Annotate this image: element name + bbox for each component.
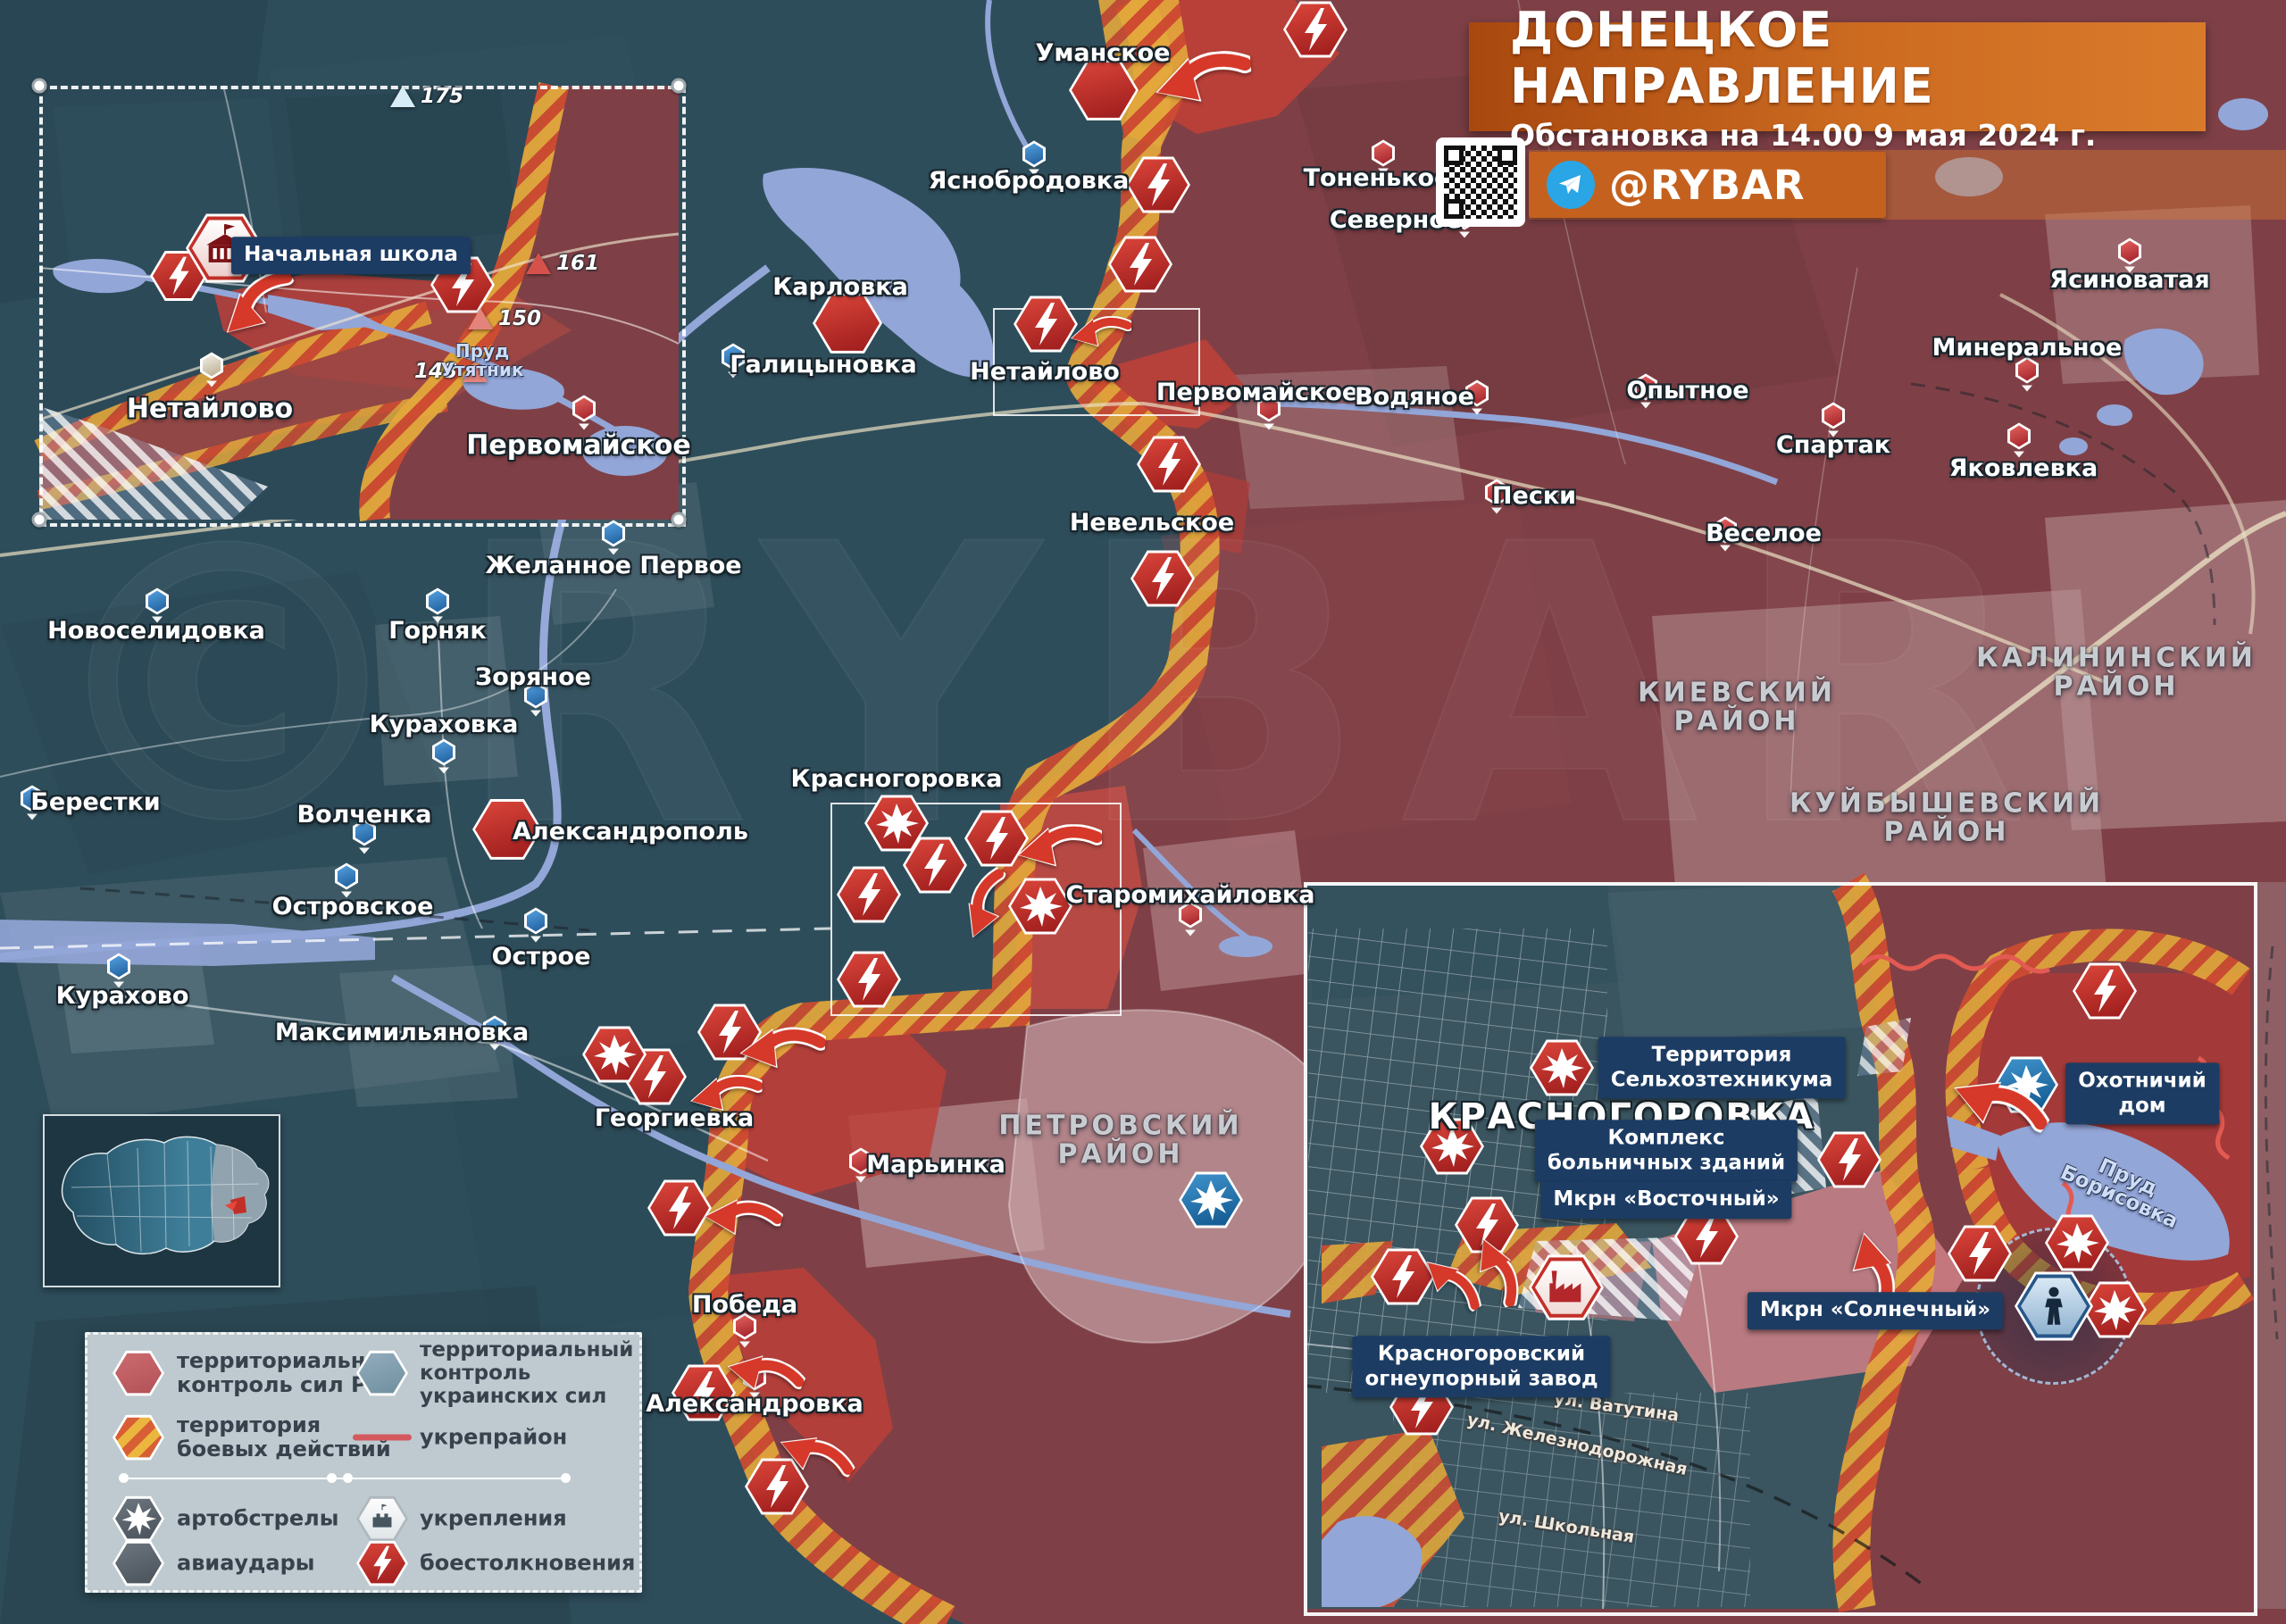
place-label: Тоненькое [1304, 166, 1451, 191]
qr-pattern [1444, 146, 1517, 219]
lightning-icon [1969, 1232, 1991, 1275]
place-label: Курахово [56, 984, 189, 1009]
height-triangle-icon [526, 253, 551, 274]
town-marker [200, 353, 223, 387]
explosion-icon [2094, 1290, 2137, 1330]
place-label: Яковлевка [1949, 456, 2098, 481]
combat-icon [2073, 963, 2137, 1020]
height-mark: 175 [390, 85, 463, 108]
height-value: 150 [498, 307, 541, 330]
place-label: Пески [1492, 484, 1576, 509]
town-marker [2015, 357, 2039, 392]
legend-clashes-label: боестолкновения [420, 1551, 635, 1575]
inset-corner-handle [672, 79, 687, 94]
place-label: Опытное [1626, 379, 1748, 404]
place-label: КАЛИНИНСКИЙ РАЙОН [1976, 645, 2257, 701]
info-box: Территория Сельхозтехникума [1598, 1037, 1846, 1098]
inset-corner-handle [32, 79, 47, 94]
place-label: Нетайлово [970, 360, 1120, 385]
explosion-icon [1541, 1048, 1584, 1088]
factory-icon [1549, 1270, 1581, 1302]
info-box: Мкрн «Солнечный» [1748, 1292, 2003, 1329]
legend-panel: территориальный контроль сил РФ территор… [85, 1332, 642, 1593]
marker-hex-icon [524, 908, 547, 935]
town-marker [572, 396, 596, 430]
combat-icon [813, 293, 882, 354]
legend-divider-dot [343, 1473, 353, 1483]
qr-finder-icon [1444, 199, 1464, 219]
lightning-icon [1130, 243, 1152, 286]
map-canvas: ©RYBAR [0, 0, 2286, 1624]
legend-divider-dot [119, 1473, 129, 1483]
combat-icon [864, 795, 929, 852]
marker-hex-icon [602, 521, 625, 547]
marker-hex-icon [432, 739, 455, 766]
marker-hex-icon [200, 353, 223, 379]
height-mark: 161 [526, 252, 599, 275]
marker-pointer [1185, 930, 1196, 937]
legend-fortified-line-icon [353, 1435, 412, 1441]
lightning-icon [1035, 303, 1057, 346]
combat-icon [1137, 437, 1201, 493]
place-label: Горняк [388, 619, 486, 644]
telegram-banner[interactable]: @RYBAR [1529, 152, 1886, 218]
info-box: Красногоровский огнеупорный завод [1352, 1336, 1610, 1397]
attack-arrow-icon [687, 1075, 763, 1123]
legend-rf-icon [113, 1351, 164, 1396]
place-label: Галицыновка [730, 353, 916, 378]
place-label: Пруд Утятник [441, 342, 524, 379]
legend-ua-label: территориальный контроль украинских сил [420, 1338, 639, 1408]
combat-icon [1530, 1040, 1594, 1096]
combat-icon [1126, 157, 1190, 213]
combat-icon [1108, 237, 1172, 293]
place-label: Нетайлово [127, 395, 293, 423]
brand-handle: @RYBAR [1609, 162, 1806, 209]
place-label: ПЕТРОВСКИЙ РАЙОН [998, 1112, 1242, 1169]
map-title: ДОНЕЦКОЕ НАПРАВЛЕНИЕ [1510, 2, 2206, 114]
place-label: КУЙБЫШЕВСКИЙ РАЙОН [1790, 790, 2104, 846]
place-label: Волченка [297, 803, 432, 828]
lightning-icon [1696, 1215, 1718, 1258]
explosion-icon [594, 1035, 637, 1075]
place-label: Островское [272, 895, 434, 920]
legend-fortifications-label: укрепления [420, 1506, 567, 1530]
legend-ua-icon [356, 1351, 408, 1396]
title-banner: ДОНЕЦКОЕ НАПРАВЛЕНИЕ Обстановка на 14.00… [1469, 22, 2206, 131]
marker-hex-icon [107, 954, 130, 980]
height-triangle-icon [390, 86, 415, 107]
ukraine-minimap [43, 1114, 280, 1287]
place-label: Спартак [1776, 433, 1890, 458]
inset-corner-handle [32, 512, 47, 528]
legend-artillery-label: артобстрелы [177, 1506, 338, 1530]
marker-hex-icon [146, 588, 169, 615]
place-label: Максимильяновка [275, 1020, 529, 1045]
info-box: Начальная школа [231, 237, 471, 274]
lightning-icon [858, 873, 880, 916]
legend-airstrikes-icon [113, 1541, 164, 1587]
combat-icon [837, 952, 901, 1008]
legend-artillery-icon [113, 1496, 164, 1542]
marker-pointer [530, 937, 541, 943]
lightning-icon [986, 817, 1008, 860]
marker-pointer [2022, 386, 2032, 392]
marker-hex-icon [2118, 238, 2141, 265]
lightning-icon [1839, 1138, 1861, 1181]
legend-divider-dot [561, 1473, 571, 1483]
soldier-icon [2045, 1287, 2063, 1325]
marker-hex-icon [2007, 423, 2031, 450]
legend-divider-dot [327, 1473, 337, 1483]
inset-corner-handle [672, 512, 687, 528]
place-label: Невельское [1070, 511, 1234, 536]
marker-hex-icon [335, 863, 358, 890]
combat-icon [1283, 2, 1347, 58]
explosion-icon [2057, 1223, 2099, 1263]
marker-pointer [1264, 424, 1274, 430]
combat-icon [2015, 1272, 2093, 1341]
place-label: Победа [692, 1293, 797, 1318]
place-label: Водяное [1355, 385, 1474, 410]
combat-icon [1529, 1254, 1604, 1320]
height-triangle-icon [468, 308, 493, 329]
legend-clashes-icon [356, 1541, 408, 1587]
lightning-icon [1152, 557, 1174, 600]
explosion-icon [876, 804, 919, 844]
place-label: Веселое [1706, 521, 1822, 546]
place-label: Ясиноватая [2049, 268, 2209, 293]
place-label: Яснобродовка [929, 169, 1130, 194]
lightning-icon [1305, 8, 1327, 51]
place-label: Острое [492, 945, 591, 970]
town-marker [524, 908, 547, 943]
qr-finder-icon [1444, 146, 1464, 165]
info-box: Охотничий дом [2065, 1062, 2219, 1124]
info-box: Комплекс больничных зданий [1535, 1120, 1798, 1181]
marker-hex-icon [1822, 403, 1845, 429]
marker-pointer [359, 848, 370, 854]
combat-icon [2045, 1215, 2109, 1271]
place-label: Старомихайловка [1065, 883, 1314, 908]
inset-krasnogorovka-bg [1304, 882, 2286, 1609]
combat-icon [1069, 60, 1139, 121]
telegram-icon [1547, 161, 1595, 209]
place-label: КИЕВСКИЙ РАЙОН [1638, 679, 1836, 736]
explosion-icon [1190, 1180, 1233, 1220]
marker-pointer [438, 768, 449, 774]
attack-arrow-icon [1067, 316, 1131, 357]
marker-hex-icon [572, 396, 596, 422]
height-mark: 150 [468, 307, 541, 330]
place-label: Первомайское [466, 431, 690, 460]
lightning-icon [1158, 443, 1181, 486]
marker-pointer [206, 381, 217, 387]
town-marker [2007, 423, 2031, 458]
marker-pointer [855, 1177, 866, 1183]
lightning-icon [669, 1187, 691, 1229]
combat-icon [1130, 551, 1195, 607]
qr-code[interactable] [1436, 137, 1525, 227]
legend-combat-zone-icon [113, 1415, 164, 1461]
combat-icon [1817, 1132, 1881, 1188]
combat-icon [1179, 1172, 1243, 1228]
qr-finder-icon [1498, 146, 1517, 165]
place-label: Марьинка [866, 1153, 1005, 1178]
combat-icon [1948, 1226, 2012, 1282]
legend-fortified-label: укрепрайон [420, 1425, 567, 1449]
attack-arrow-icon [1147, 49, 1256, 123]
marker-hex-icon [426, 588, 449, 615]
lightning-icon [1147, 163, 1170, 206]
lightning-icon [2094, 970, 2116, 1012]
legend-fortifications-icon [356, 1496, 408, 1542]
marker-hex-icon [1372, 140, 1395, 167]
marker-hex-icon [1022, 141, 1046, 168]
combat-icon [837, 867, 901, 923]
place-label: Берестки [30, 790, 160, 815]
ukraine-minimap-graphic [45, 1116, 275, 1282]
place-label: Красногоровка [791, 767, 1003, 792]
place-label: Новоселидовка [47, 619, 265, 644]
place-label: Зоряное [475, 665, 591, 690]
attack-arrow-icon [1013, 824, 1102, 881]
lightning-icon [644, 1055, 666, 1098]
place-label: Александрополь [513, 820, 748, 845]
height-value: 175 [421, 85, 463, 108]
place-label: Минеральное [1932, 336, 2123, 361]
town-marker [432, 739, 455, 774]
marker-pointer [530, 711, 541, 717]
place-label: Карловка [772, 275, 908, 300]
map-subtitle: Обстановка на 14.00 9 мая 2024 г. [1510, 118, 2206, 153]
place-label: Желанное Первое [485, 554, 741, 579]
legend-airstrikes-label: авиаудары [177, 1551, 315, 1575]
info-box: Мкрн «Восточный» [1540, 1181, 1791, 1219]
lightning-icon [858, 958, 880, 1001]
town-marker [602, 521, 625, 555]
height-value: 161 [556, 252, 599, 275]
combat-icon [582, 1027, 647, 1083]
place-label: Первомайское [1156, 380, 1358, 405]
place-label: Кураховка [370, 712, 519, 737]
